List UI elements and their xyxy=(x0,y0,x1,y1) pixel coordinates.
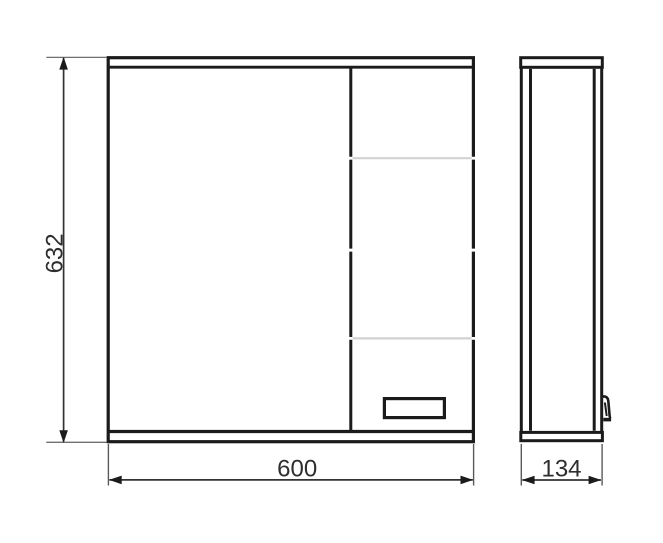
svg-text:600: 600 xyxy=(277,456,317,483)
svg-text:632: 632 xyxy=(42,233,69,273)
svg-text:134: 134 xyxy=(541,456,581,483)
